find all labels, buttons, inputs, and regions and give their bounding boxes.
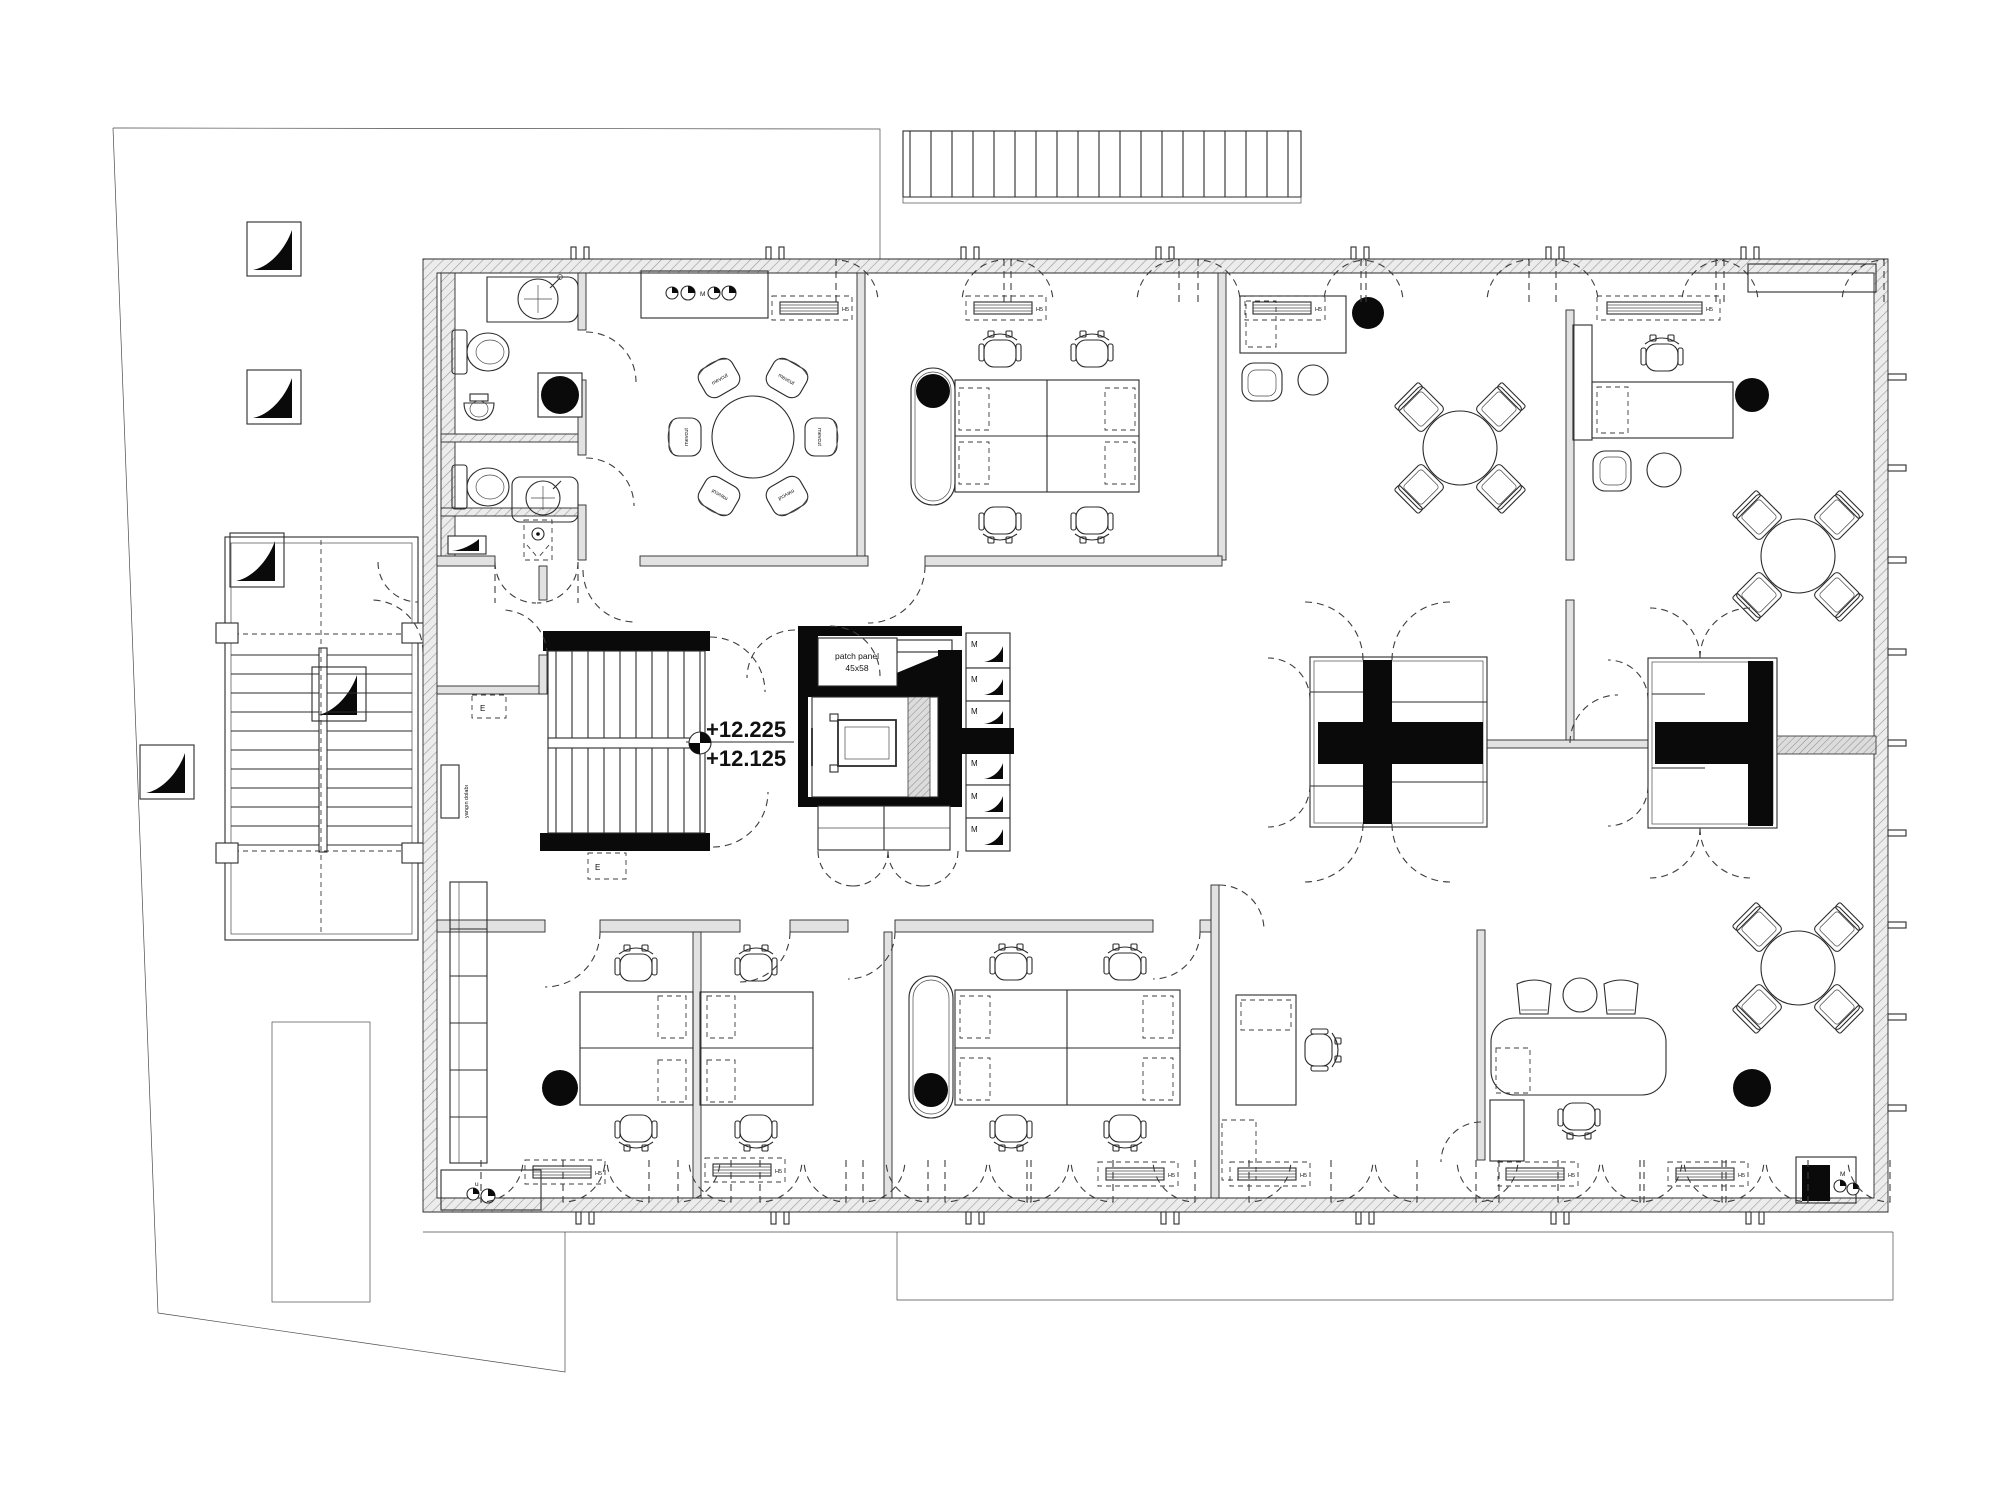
level-annotation: +12.225 +12.125 [686, 717, 794, 771]
svg-text:M: M [971, 675, 978, 684]
floor-plan-page: mevcut H5 H5 [0, 0, 2000, 1495]
svg-text:M: M [971, 640, 978, 649]
column [1352, 297, 1384, 329]
office-open-top [911, 331, 1139, 543]
door-swing [586, 332, 636, 382]
meeting-desk [1491, 1018, 1666, 1095]
column [216, 843, 238, 863]
column [916, 374, 950, 408]
corner-kitchen-point: M [1796, 1157, 1859, 1203]
column [542, 1070, 578, 1106]
level-lower: +12.125 [706, 746, 786, 771]
electrical-box [472, 695, 506, 718]
core-cross-2 [1608, 608, 1876, 878]
patch-panel-label-2: 45x58 [845, 663, 868, 673]
fire-cabinet-label: yangın dolabı [464, 785, 470, 818]
electrical-label: E [595, 863, 600, 872]
column [541, 376, 579, 414]
floor-plan-canvas: mevcut H5 H5 [0, 0, 2000, 1495]
planter [272, 1022, 370, 1302]
sink-label: u [475, 1181, 479, 1188]
elevator-core: patch panel 45x58 M M M M M M [747, 626, 1014, 886]
office-bottom-5: M [1441, 902, 1864, 1203]
desk [1592, 382, 1733, 438]
column [1735, 378, 1769, 412]
column [402, 843, 424, 863]
svg-text:M: M [971, 707, 978, 716]
level-upper: +12.225 [706, 717, 786, 742]
office-bottom-4 [1219, 885, 1341, 1180]
core-cross-1 [1268, 602, 1487, 882]
office-bottom-3 [909, 944, 1180, 1151]
fire-cabinet: yangın dolabı [441, 765, 470, 818]
door-swing [586, 458, 634, 506]
column [1733, 1069, 1771, 1107]
patch-panel-room [818, 638, 897, 686]
desk [1240, 296, 1346, 353]
cabinet [1490, 1100, 1524, 1161]
column [914, 1073, 948, 1107]
svg-text:M: M [971, 792, 978, 801]
side-table [1563, 978, 1597, 1012]
urinal [464, 394, 494, 420]
desk [1236, 995, 1296, 1105]
mullion-ticks-right [1888, 374, 1906, 1111]
external-stair-court [216, 537, 424, 940]
cabinet [448, 536, 486, 554]
corner-label: M [1840, 1171, 1845, 1178]
meeting-table [712, 396, 794, 478]
office-top-right-1 [1240, 296, 1526, 514]
side-table [1647, 453, 1681, 487]
pergola [903, 131, 1301, 203]
side-table [1298, 365, 1328, 395]
column [216, 623, 238, 643]
wc-block [448, 275, 636, 561]
meeting-room: M [641, 271, 838, 520]
door-swing [710, 637, 765, 692]
door-swing [713, 792, 768, 847]
sideboard [1573, 325, 1592, 440]
bridge-wall [1777, 736, 1876, 754]
svg-text:M: M [971, 759, 978, 768]
electrical-label: E [480, 704, 485, 713]
column [402, 623, 424, 643]
svg-text:M: M [971, 825, 978, 834]
office-bottom-2 [700, 945, 813, 1151]
patch-panel-label-1: patch panel [835, 651, 879, 661]
electrical-box [588, 853, 626, 879]
office-top-right-2 [1573, 325, 1864, 622]
counter-label: M [700, 291, 705, 298]
